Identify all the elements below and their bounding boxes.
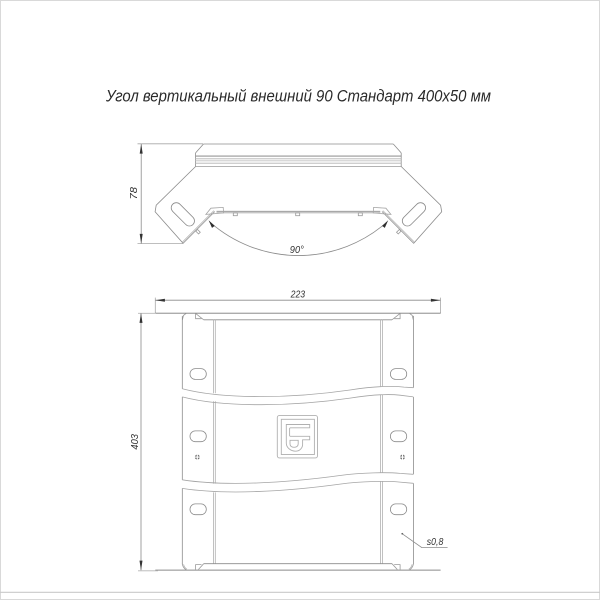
svg-text:223: 223 [290,289,306,300]
svg-text:s0,8: s0,8 [427,537,444,548]
svg-text:78: 78 [129,187,140,200]
svg-text:90°: 90° [290,245,304,256]
svg-text:403: 403 [130,434,141,450]
svg-text:Угол вертикальный внешний 90 С: Угол вертикальный внешний 90 Стандарт 40… [105,87,491,106]
